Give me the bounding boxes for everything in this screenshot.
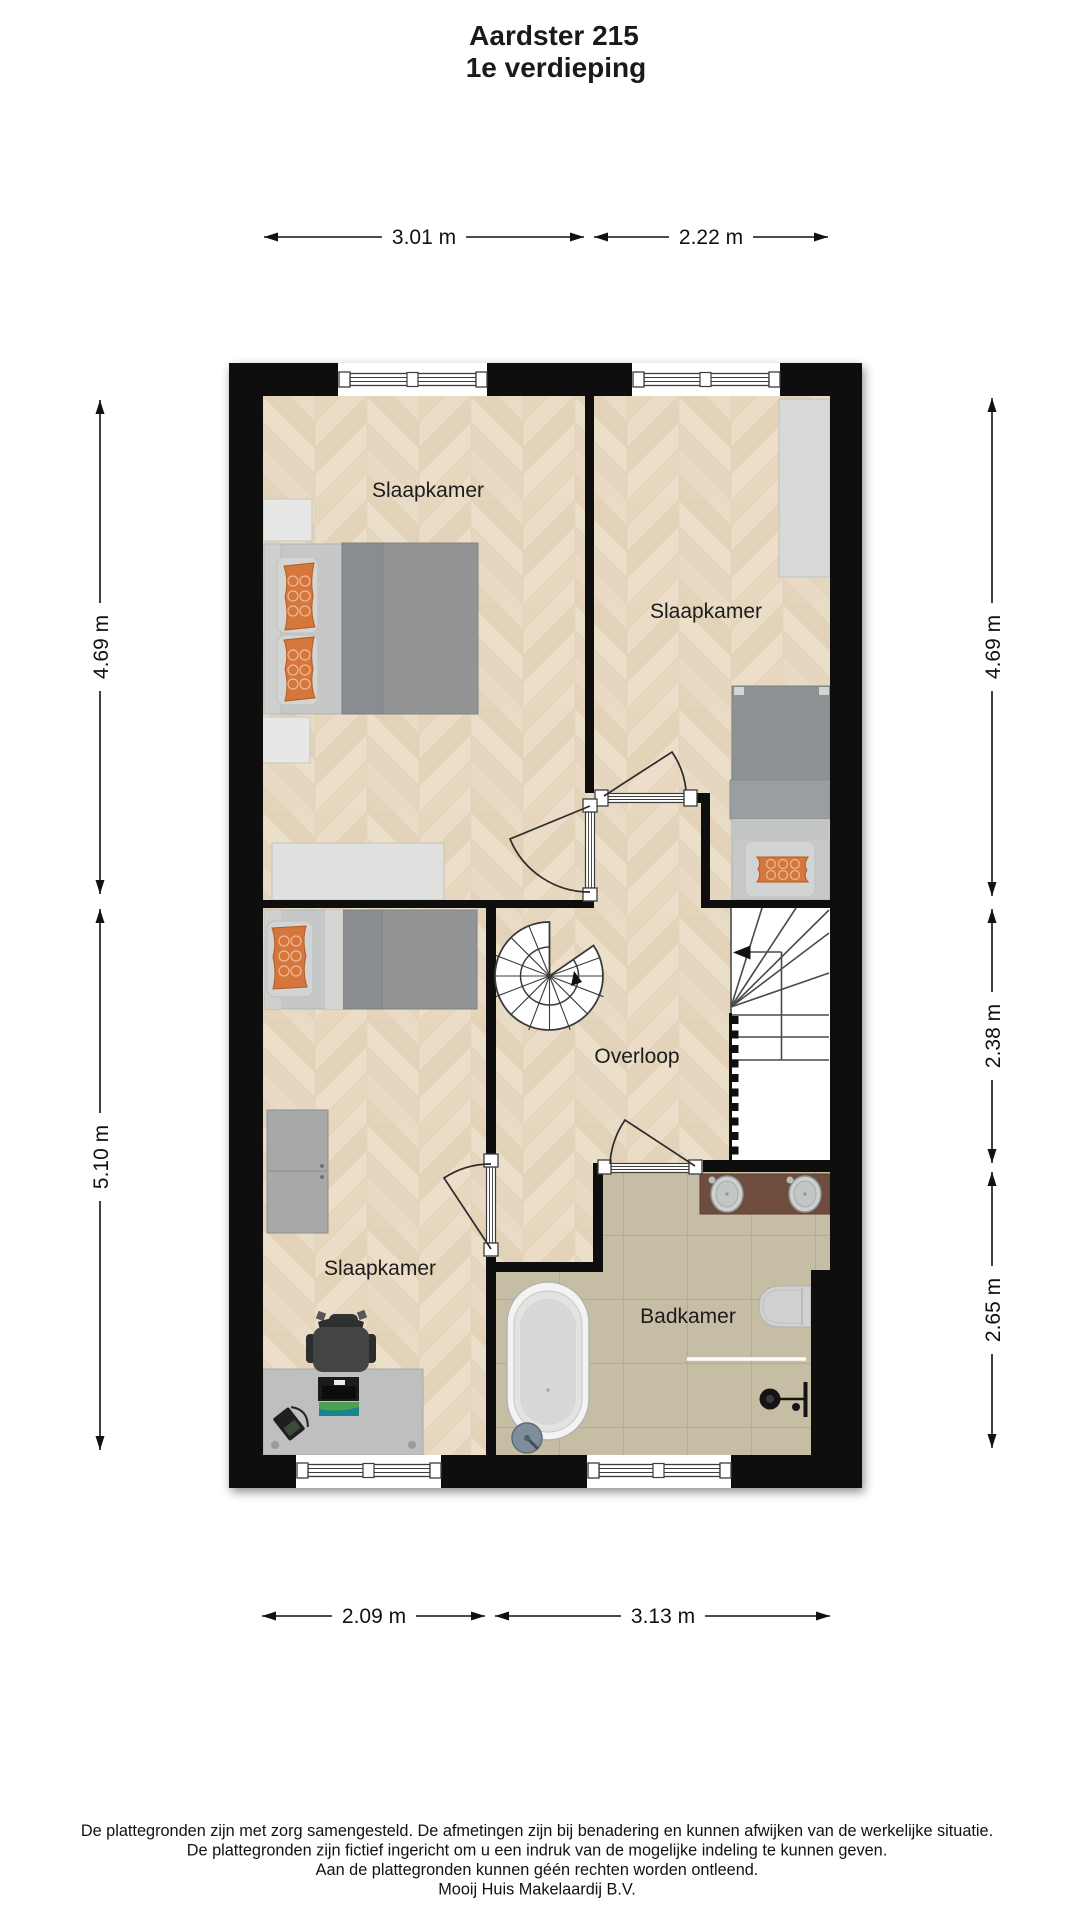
- svg-text:Aan de plattegronden kunnen gé: Aan de plattegronden kunnen géén rechten…: [316, 1861, 759, 1879]
- svg-text:3.01 m: 3.01 m: [392, 226, 456, 249]
- svg-text:2.22 m: 2.22 m: [679, 226, 743, 249]
- svg-text:Slaapkamer: Slaapkamer: [324, 1257, 436, 1280]
- svg-text:2.38 m: 2.38 m: [982, 1004, 1005, 1068]
- svg-text:4.69 m: 4.69 m: [982, 615, 1005, 679]
- svg-text:Mooij Huis Makelaardij B.V.: Mooij Huis Makelaardij B.V.: [438, 1881, 636, 1899]
- svg-text:4.69 m: 4.69 m: [90, 615, 113, 679]
- svg-text:Overloop: Overloop: [594, 1045, 679, 1068]
- svg-text:2.65 m: 2.65 m: [982, 1278, 1005, 1342]
- svg-text:5.10 m: 5.10 m: [90, 1125, 113, 1189]
- svg-text:Slaapkamer: Slaapkamer: [372, 479, 484, 502]
- svg-text:De plattegronden zijn fictief: De plattegronden zijn fictief ingericht …: [187, 1842, 888, 1860]
- svg-text:3.13 m: 3.13 m: [631, 1605, 695, 1628]
- svg-text:De plattegronden zijn met zorg: De plattegronden zijn met zorg samengest…: [81, 1822, 993, 1840]
- svg-text:Aardster 215: Aardster 215: [469, 20, 639, 51]
- svg-text:1e verdieping: 1e verdieping: [466, 52, 647, 83]
- svg-text:Slaapkamer: Slaapkamer: [650, 600, 762, 623]
- svg-text:Badkamer: Badkamer: [640, 1305, 736, 1328]
- svg-text:2.09 m: 2.09 m: [342, 1605, 406, 1628]
